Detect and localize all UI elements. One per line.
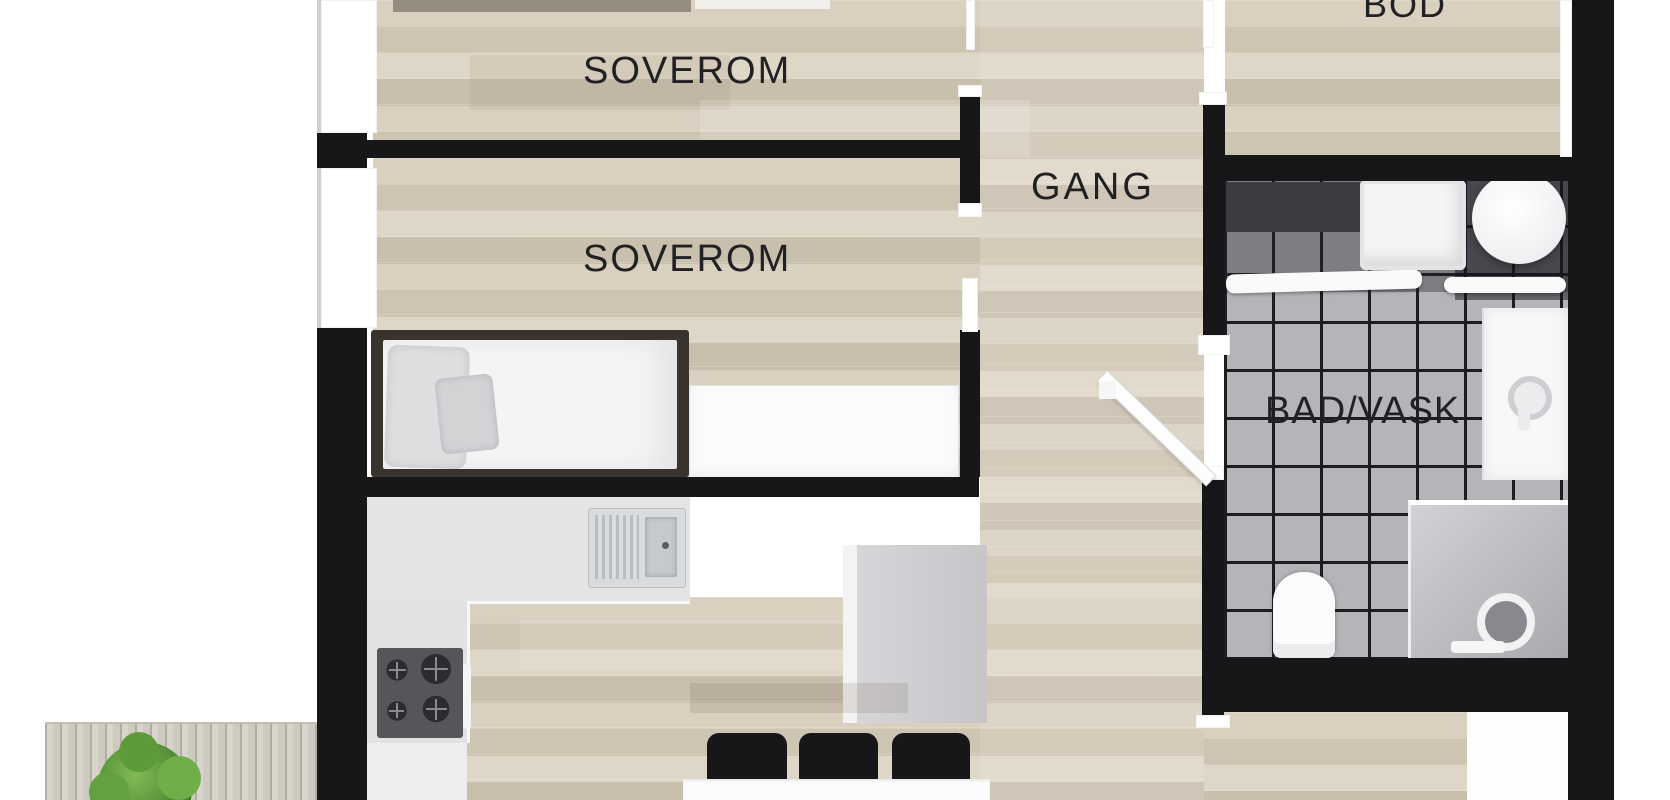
wardrobe-edge [695, 0, 830, 9]
oven-handle [463, 663, 471, 729]
wall-shelf [1444, 277, 1566, 293]
leaf-cluster [119, 732, 159, 772]
room-label-bod: BOD [1363, 0, 1447, 26]
cooktop-stove [377, 648, 463, 738]
wall-bath-bottom [1222, 658, 1570, 712]
potted-plant [97, 742, 192, 800]
wall-right-outer [1568, 0, 1614, 800]
sink-basin [645, 517, 677, 577]
door-jamb [958, 203, 982, 217]
room-label-bad-vask: BAD/VASK [1265, 390, 1460, 433]
wall-bath-left [1202, 480, 1224, 717]
door-jamb [1198, 335, 1230, 355]
burner [421, 694, 451, 724]
dining-chair [799, 733, 878, 783]
shower [1408, 500, 1569, 663]
floor-shadow [690, 683, 908, 713]
room-label-soverom-2: SOVEROM [583, 238, 791, 281]
round-basin [1472, 172, 1566, 264]
wall-hall-left-a [960, 95, 980, 205]
window [317, 0, 377, 133]
entry-floor [1204, 712, 1467, 800]
wall-bedroom2-bottom [317, 477, 979, 497]
burner [419, 652, 453, 686]
toilet [1273, 572, 1335, 658]
vanity-faucet [1508, 376, 1552, 420]
dresser [689, 385, 959, 479]
burner [385, 658, 409, 682]
wardrobe-edge [393, 0, 691, 12]
door-hinge [1099, 381, 1116, 399]
room-label-soverom-1: SOVEROM [583, 50, 791, 93]
room-label-gang: GANG [1031, 166, 1155, 209]
dining-chair [707, 733, 787, 783]
door-jamb [1196, 715, 1230, 728]
wall-storage-left [1203, 104, 1225, 337]
leaf-cluster [157, 756, 201, 800]
door-jamb [958, 85, 982, 97]
door-jamb [962, 278, 978, 332]
window [1560, 0, 1572, 157]
washing-machine [1360, 180, 1466, 270]
vanity-faucet-stem [1518, 406, 1530, 430]
floor-plan: SOVEROM SOVEROM GANG BOD BAD/VASK [0, 0, 1670, 800]
shower-faucet [1451, 641, 1505, 653]
burner [386, 700, 408, 722]
dining-chair [892, 733, 970, 783]
sink-faucet [662, 542, 669, 549]
kitchen-sink [588, 508, 686, 588]
door-jamb [966, 0, 975, 50]
wall-hall-left-b [960, 330, 980, 477]
sink-drainboard [595, 515, 639, 579]
door-jamb [1199, 92, 1227, 105]
door-jamb [1203, 0, 1214, 48]
wall-bedroom-divider [340, 140, 962, 158]
wall-left-outer [317, 328, 367, 800]
wall-storage-bottom [1225, 155, 1575, 181]
pillow [434, 373, 500, 455]
window [317, 168, 377, 328]
bathroom-counter [1226, 182, 1360, 232]
entry-white-floor [1467, 712, 1566, 800]
dining-table [683, 779, 990, 800]
